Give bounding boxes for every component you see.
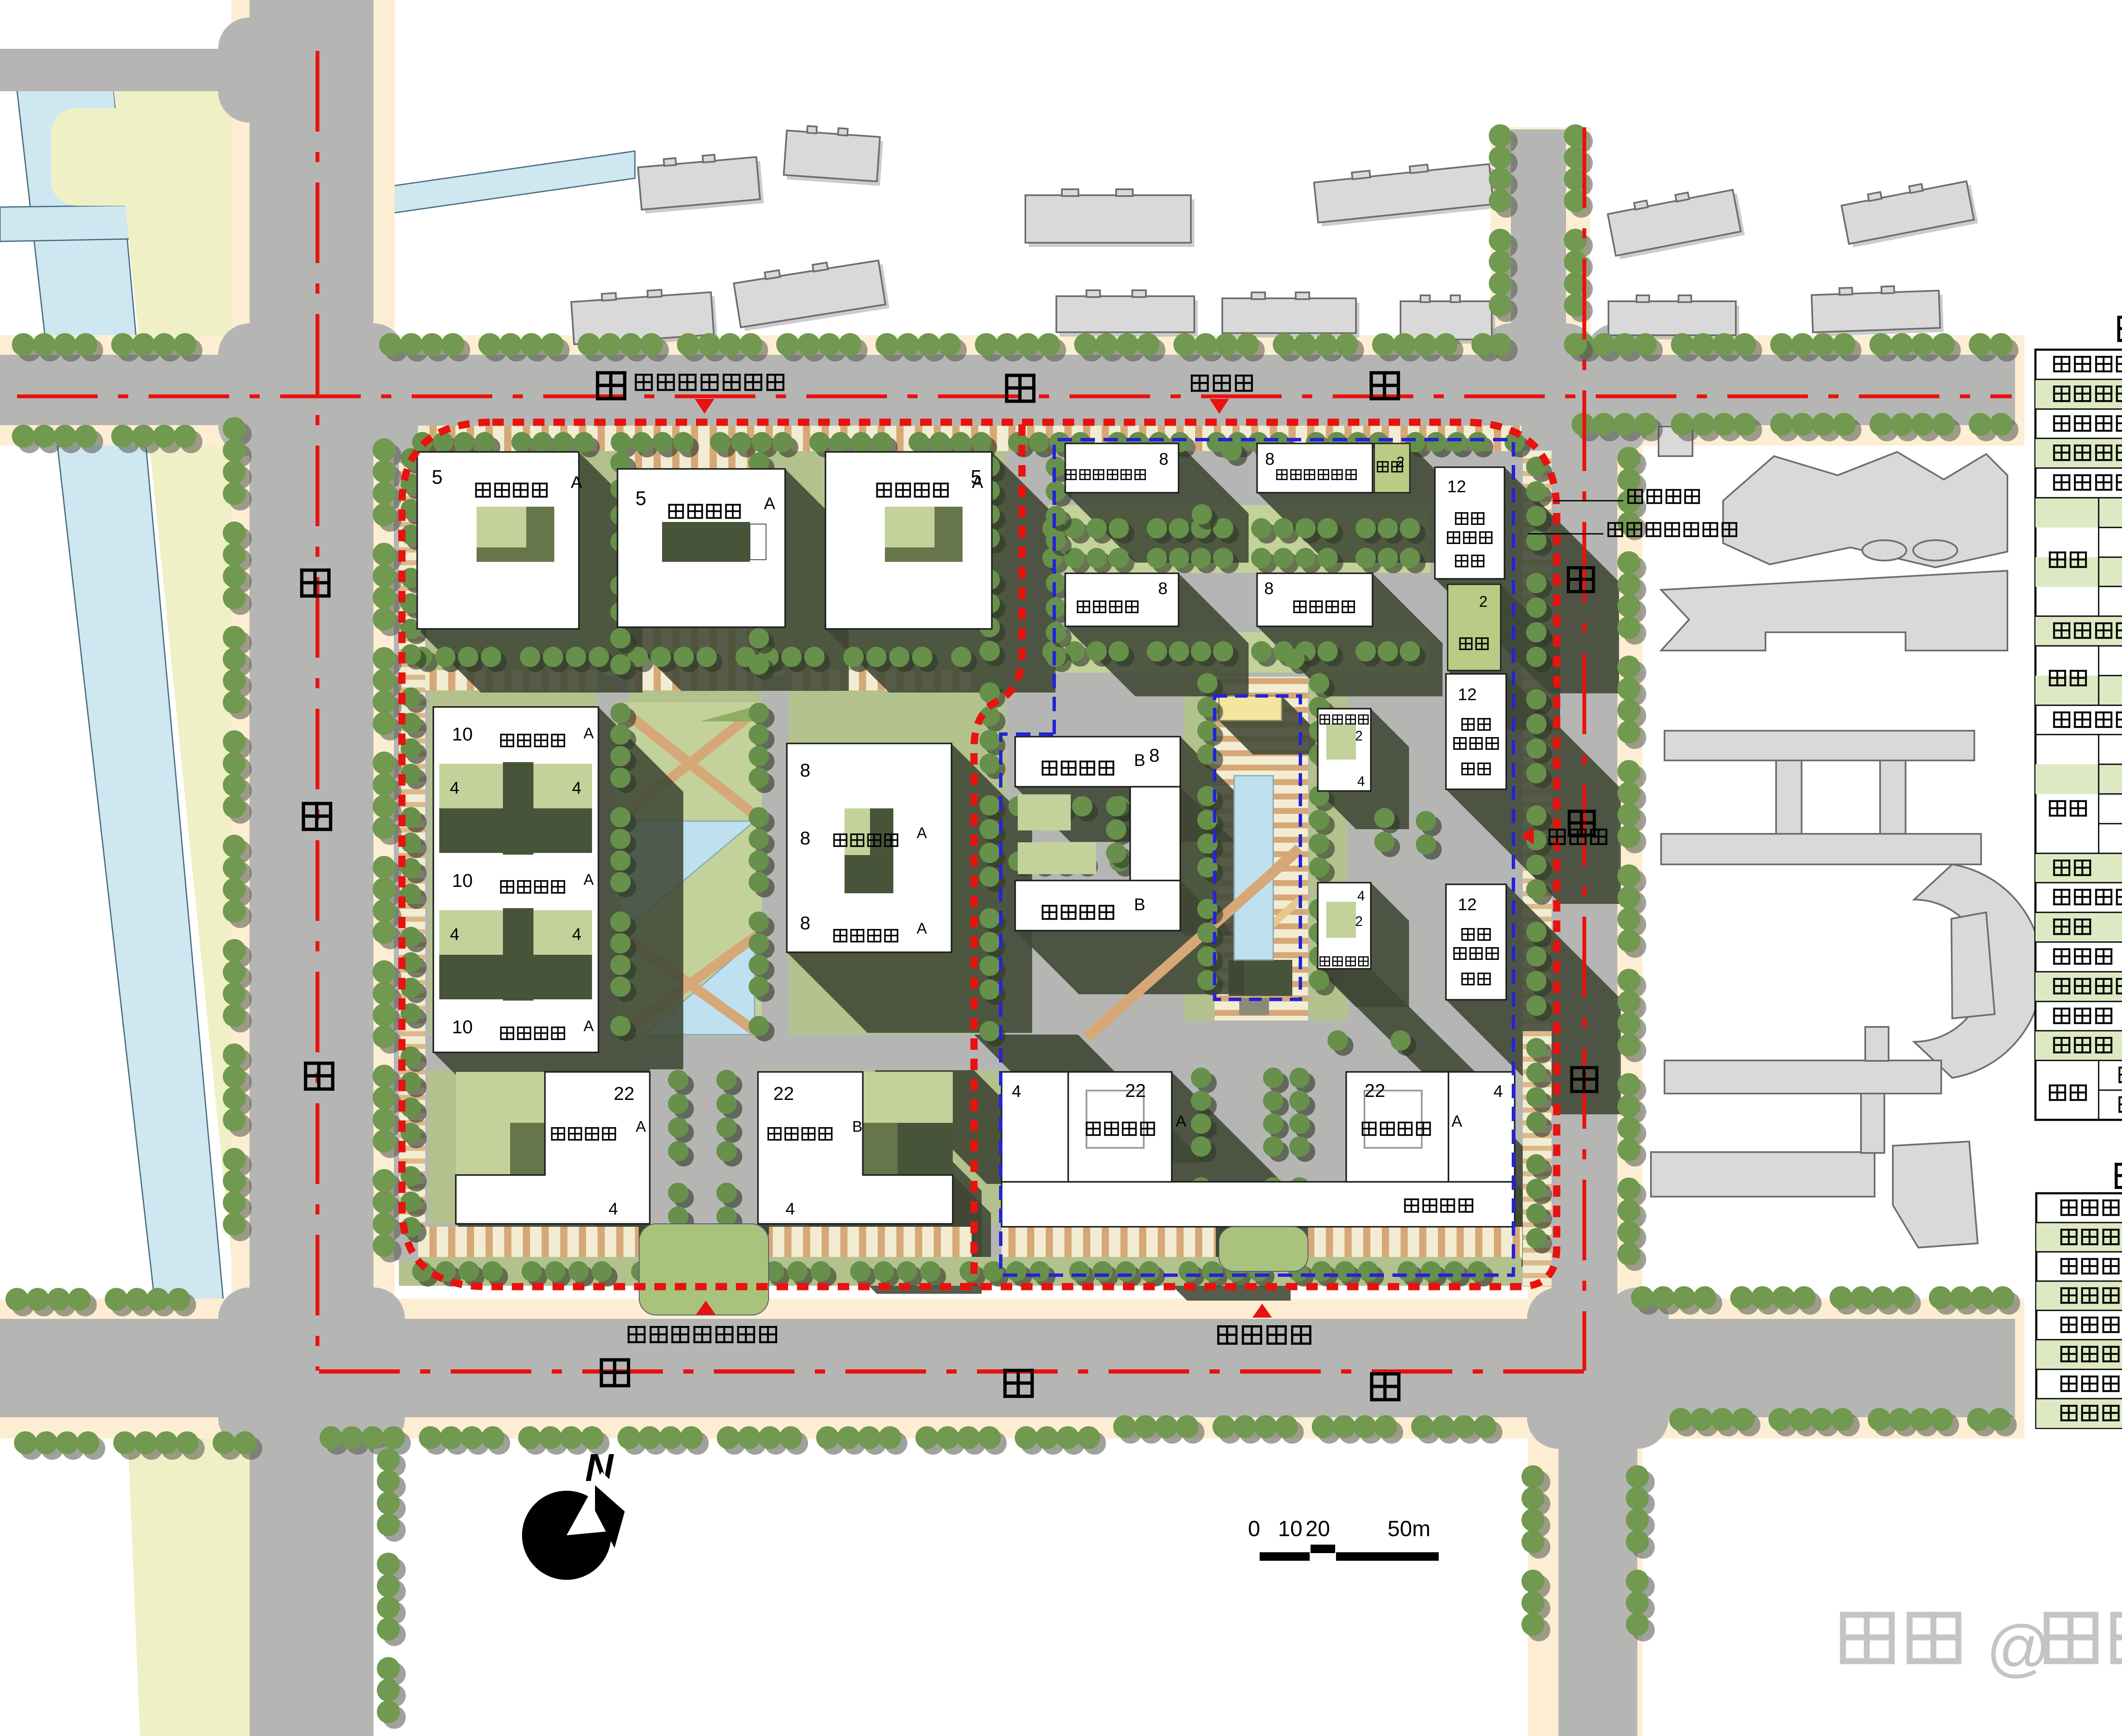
svg-text:10: 10 (1278, 1517, 1302, 1541)
svg-text:50m: 50m (1387, 1517, 1430, 1541)
svg-text:8: 8 (1265, 450, 1274, 468)
svg-text:A: A (584, 724, 594, 742)
svg-text:5: 5 (635, 487, 646, 509)
svg-text:A: A (636, 1118, 646, 1135)
svg-text:4: 4 (609, 1200, 618, 1218)
svg-text:12: 12 (1458, 895, 1477, 914)
svg-text:4: 4 (1357, 888, 1365, 903)
svg-text:A: A (917, 920, 927, 937)
svg-text:22: 22 (1364, 1080, 1385, 1101)
svg-text:5: 5 (432, 466, 443, 488)
svg-text:A: A (571, 473, 582, 492)
svg-text:8: 8 (1159, 450, 1168, 468)
svg-text:4: 4 (1012, 1082, 1021, 1101)
svg-text:22: 22 (614, 1083, 634, 1104)
svg-text:A: A (764, 494, 775, 513)
svg-text:12: 12 (1458, 685, 1477, 704)
svg-text:2: 2 (1479, 593, 1488, 610)
svg-text:8: 8 (1158, 579, 1168, 598)
svg-text:B: B (852, 1118, 862, 1135)
svg-text:4: 4 (450, 779, 459, 797)
svg-text:2: 2 (1355, 728, 1363, 743)
svg-text:0: 0 (1248, 1517, 1260, 1541)
svg-text:A: A (1451, 1113, 1462, 1130)
svg-text:A: A (584, 871, 594, 888)
svg-text:10: 10 (452, 1017, 473, 1038)
svg-text:@: @ (1986, 1612, 2051, 1683)
svg-text:2: 2 (1355, 914, 1363, 929)
svg-text:8: 8 (800, 828, 810, 849)
svg-text:8: 8 (1149, 745, 1159, 766)
svg-text:4: 4 (572, 925, 581, 944)
svg-text:10: 10 (452, 870, 473, 891)
svg-text:4: 4 (450, 925, 459, 944)
svg-text:2: 2 (1397, 454, 1405, 470)
svg-text:B: B (1134, 895, 1145, 914)
svg-text:4: 4 (1357, 774, 1365, 789)
svg-text:A: A (584, 1017, 594, 1035)
svg-text:B: B (1134, 751, 1145, 770)
svg-text:20: 20 (1305, 1517, 1330, 1541)
svg-text:4: 4 (1493, 1082, 1503, 1101)
svg-text:22: 22 (1125, 1080, 1146, 1101)
svg-text:8: 8 (1264, 579, 1274, 598)
svg-text:22: 22 (773, 1083, 794, 1104)
svg-text:A: A (972, 473, 983, 492)
svg-text:A: A (1176, 1113, 1187, 1130)
svg-text:10: 10 (452, 724, 473, 745)
svg-text:4: 4 (572, 779, 581, 797)
svg-text:4: 4 (786, 1200, 795, 1218)
svg-text:8: 8 (800, 760, 810, 781)
svg-text:A: A (917, 824, 927, 841)
svg-text:12: 12 (1447, 477, 1466, 496)
svg-text:8: 8 (800, 913, 810, 934)
